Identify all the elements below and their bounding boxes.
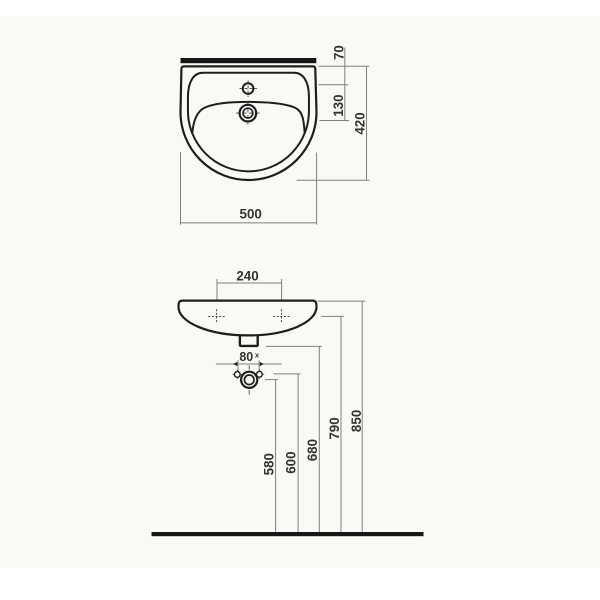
- svg-text:850: 850: [349, 410, 364, 432]
- svg-text:680: 680: [305, 439, 320, 461]
- svg-text:500: 500: [240, 206, 262, 221]
- svg-text:240: 240: [236, 268, 258, 283]
- svg-text:790: 790: [327, 417, 342, 439]
- svg-text:70: 70: [332, 45, 347, 60]
- svg-text:600: 600: [283, 451, 298, 473]
- svg-text:420: 420: [353, 112, 368, 134]
- svg-text:130: 130: [331, 94, 346, 116]
- svg-text:580: 580: [262, 453, 277, 475]
- svg-text:80: 80: [239, 350, 253, 364]
